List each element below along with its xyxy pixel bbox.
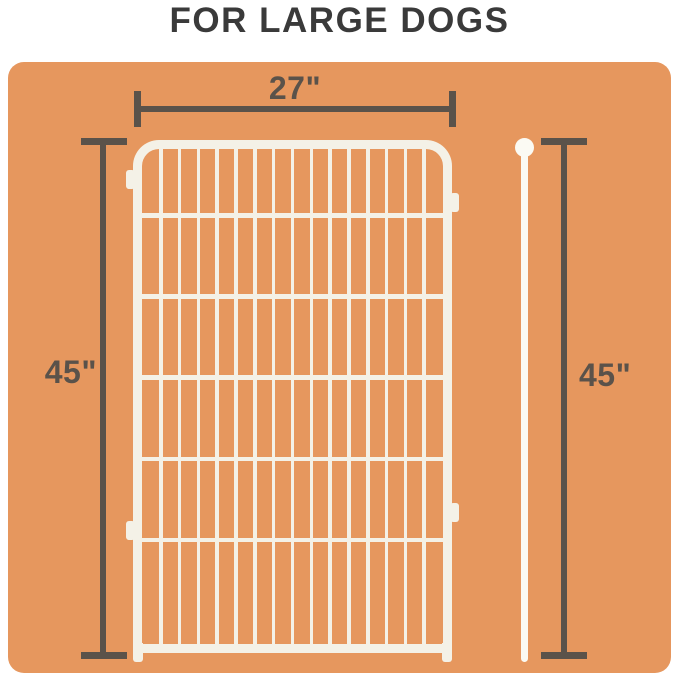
right-height-dimension-line [561, 141, 567, 656]
width-dimension-endcap [449, 91, 456, 127]
left-height-dimension-line [100, 141, 106, 656]
fence-panel [133, 140, 452, 653]
width-dimension-endcap [134, 91, 141, 127]
left-height-dimension-endcap [81, 138, 127, 145]
right-height-dimension-label: 45" [579, 357, 631, 394]
left-height-dimension-label: 45" [10, 354, 97, 391]
fence-foot-right [442, 643, 452, 662]
page-title: FOR LARGE DOGS [0, 1, 679, 41]
width-dimension-label: 27" [137, 70, 453, 107]
fence-foot-left [133, 643, 143, 662]
right-height-dimension-endcap [541, 652, 587, 659]
fence-connector-tab [126, 521, 135, 540]
fence-connector-tab [450, 193, 459, 212]
fence-connector-tab [126, 170, 135, 189]
right-height-dimension-endcap [541, 138, 587, 145]
fence-frame [133, 140, 452, 653]
fence-connector-tab [450, 503, 459, 522]
width-dimension-line [137, 106, 453, 112]
connector-rod-shaft [521, 152, 528, 662]
left-height-dimension-endcap [81, 652, 127, 659]
product-size-infographic: 27" 45" 45" FOR LARGE DOGS [0, 0, 679, 679]
